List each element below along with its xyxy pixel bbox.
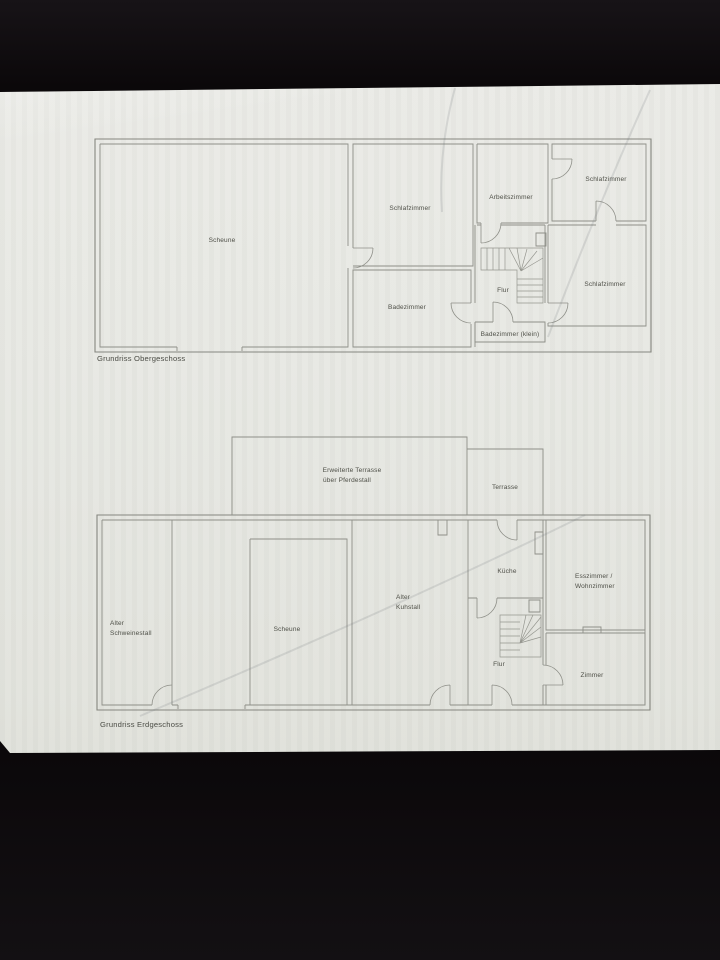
- room-label-scheune-og: Scheune: [209, 237, 236, 244]
- terrace-walls: [232, 437, 543, 515]
- room-label-terrasse: Terrasse: [492, 484, 518, 491]
- room-label-alter-kuhstall-2: Kuhstall: [396, 604, 421, 611]
- lower-plan-caption: Grundriss Erdgeschoss: [100, 720, 183, 729]
- upper-schlafzimmer-bottom-right-walls: [548, 225, 646, 326]
- upper-corridor-walls: [475, 225, 545, 347]
- room-label-schlafzimmer-top-right: Schlafzimmer: [585, 176, 627, 183]
- room-label-badezimmer-klein: Badezimmer (klein): [481, 331, 540, 338]
- room-label-esszimmer-1: Esszimmer /: [575, 573, 612, 580]
- room-label-scheune-eg: Scheune: [274, 626, 301, 633]
- chimney-stub: [438, 520, 447, 535]
- upper-closet-box: [536, 233, 546, 246]
- upper-scheune-walls: [100, 144, 348, 351]
- zimmer-walls: [546, 633, 645, 705]
- photo-background: Scheune Schlafzimmer Arbeitszimmer Schla…: [0, 0, 720, 960]
- room-label-esszimmer-2: Wohnzimmer: [575, 583, 615, 590]
- lower-outer-wall: [97, 515, 650, 710]
- room-label-schlafzimmer-left: Schlafzimmer: [389, 205, 431, 212]
- room-label-arbeitszimmer: Arbeitszimmer: [489, 194, 533, 201]
- room-label-erweiterte-terrasse-1: Erweiterte Terrasse: [323, 467, 382, 474]
- lower-doors: [152, 520, 563, 705]
- crease-line: [140, 515, 585, 716]
- room-label-schlafzimmer-bottom-right: Schlafzimmer: [584, 281, 626, 288]
- upper-plan: Scheune Schlafzimmer Arbeitszimmer Schla…: [95, 139, 651, 363]
- floor-plan-drawing: Scheune Schlafzimmer Arbeitszimmer Schla…: [0, 0, 720, 960]
- room-label-badezimmer: Badezimmer: [388, 304, 427, 311]
- lower-scheune-walls: [250, 520, 352, 705]
- room-label-erweiterte-terrasse-2: über Pferdestall: [323, 477, 371, 484]
- upper-stairs: [481, 248, 543, 303]
- room-label-kueche: Küche: [497, 568, 516, 575]
- room-label-flur-og: Flur: [497, 287, 509, 294]
- lower-stairs: [500, 615, 541, 657]
- crease-line: [548, 90, 650, 337]
- crease-line: [441, 88, 455, 212]
- room-label-alter-schweinestall-1: Alter: [110, 620, 125, 627]
- paper-creases: [140, 88, 650, 716]
- upper-plan-caption: Grundriss Obergeschoss: [97, 354, 185, 363]
- room-label-zimmer: Zimmer: [581, 672, 605, 679]
- lower-closet-box: [529, 532, 543, 612]
- upper-arbeitszimmer-walls: [477, 144, 548, 223]
- upper-doors: [353, 159, 616, 323]
- lower-plan: Erweiterte Terrasse über Pferdestall Ter…: [97, 437, 650, 729]
- room-label-flur-eg: Flur: [493, 661, 505, 668]
- room-label-alter-schweinestall-2: Schweinestall: [110, 630, 152, 637]
